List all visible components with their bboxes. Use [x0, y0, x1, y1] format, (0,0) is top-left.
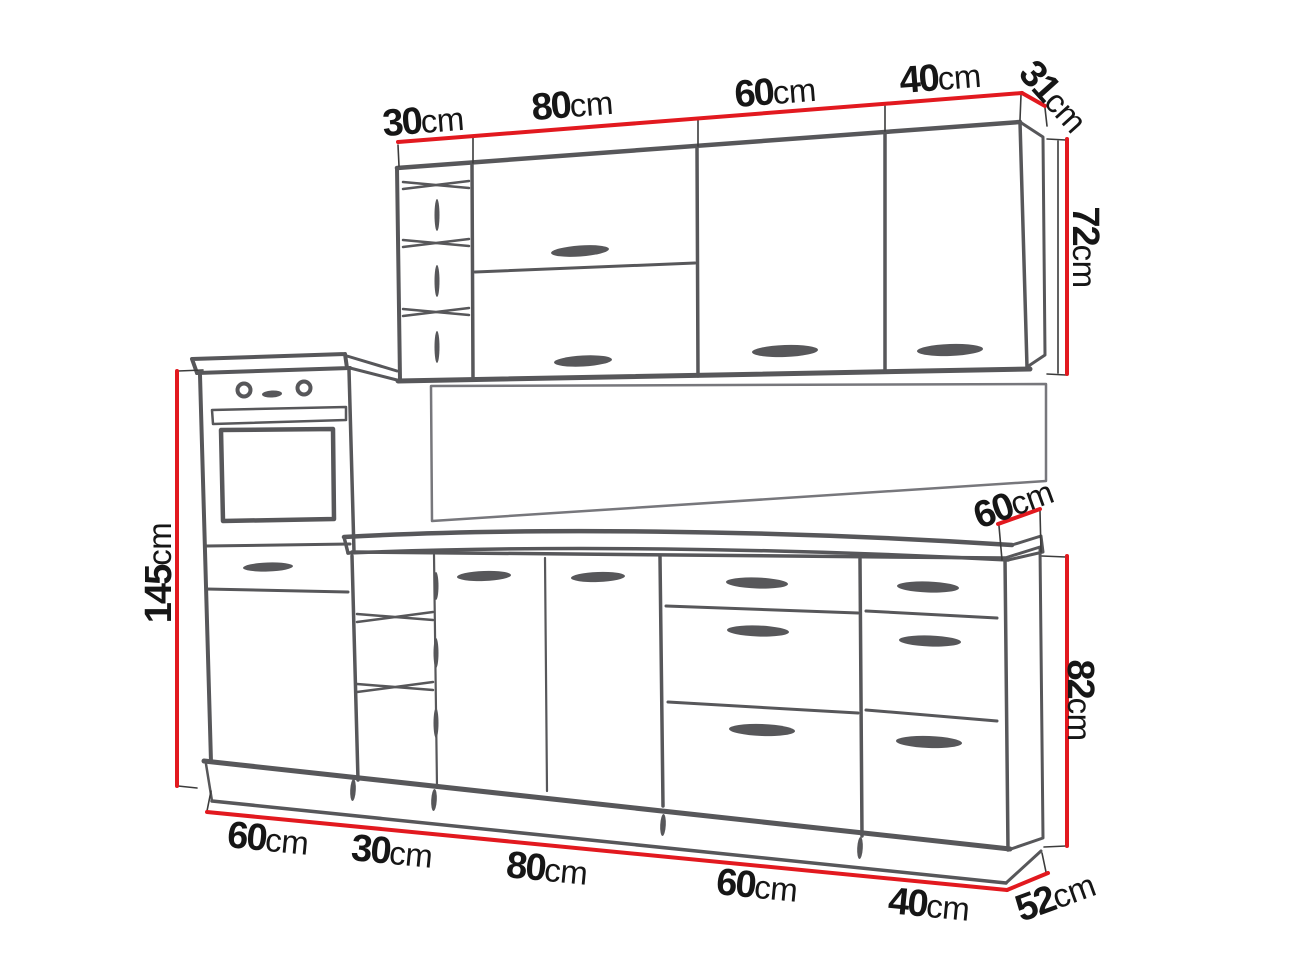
tall-oven-cabinet	[192, 354, 397, 762]
dim-label-upper-width-40: 40cm	[898, 54, 982, 102]
base-run-side-panel	[1005, 547, 1043, 850]
base-run-dividers	[660, 557, 862, 836]
dim-label-base-depth-52: 52cm	[1010, 863, 1101, 930]
kickplate-tick-1	[350, 779, 357, 801]
kitchen-dimension-diagram: 30cm 80cm 60cm 40cm 31cm 72cm 145cm 60cm…	[0, 0, 1306, 979]
base-60-drawer-lines	[666, 606, 858, 713]
base-cabinet-run	[204, 547, 1043, 883]
dim-label-base-height-82: 82cm	[1059, 659, 1101, 740]
base-shelf-unit-left-edge	[352, 556, 358, 780]
dim-line-upper-widths	[398, 93, 1022, 142]
base-40-drawer-handle-3	[896, 735, 962, 749]
upper-80-top-door-handle	[551, 243, 610, 258]
oven-indicator-icon	[262, 390, 282, 398]
base-shelf-edges	[357, 612, 433, 692]
upper-run-top-edge	[397, 122, 1020, 168]
oven-door-window	[221, 429, 334, 521]
kickplate-tick-2	[431, 789, 438, 811]
upper-run-bottom-edge	[398, 369, 1030, 381]
dim-label-upper-depth-31: 31cm	[1010, 52, 1096, 141]
oven-front	[206, 382, 350, 593]
dim-label-tall-height-145: 145cm	[138, 523, 180, 623]
upper-60-door-handle	[752, 344, 818, 358]
upper-cabinet-run	[397, 122, 1045, 381]
base-60-drawer-handle-1	[726, 576, 788, 589]
upper-80-door-split-line	[475, 263, 695, 272]
tall-cabinet-top-slab	[192, 354, 350, 373]
upper-shelf-support-1	[435, 199, 440, 231]
tall-cabinet-right-edge	[349, 370, 354, 552]
upper-open-shelf-unit	[403, 181, 469, 363]
extension-lines	[178, 95, 1066, 872]
oven-knob-right-icon	[298, 382, 311, 395]
dim-label-base-width-80: 80cm	[504, 844, 589, 894]
tall-cabinet-left-edge	[200, 375, 211, 762]
upper-run-front-right-corner	[1020, 122, 1027, 367]
backsplash-outline	[431, 384, 1046, 521]
dim-label-worktop-depth-60: 60cm	[968, 470, 1059, 537]
upper-40-door-handle	[917, 343, 983, 357]
kitchen-set-drawing: 30cm 80cm 60cm 40cm 31cm 72cm 145cm 60cm…	[0, 0, 1306, 979]
base-shelf-support-3	[434, 708, 439, 738]
base-shelf-support-2	[434, 638, 439, 668]
upper-shelf-support-3	[435, 331, 440, 363]
base-shelf-support-1	[434, 572, 439, 600]
tall-cabinet-top-connector	[347, 356, 397, 380]
base-run-thin-dividers	[434, 555, 547, 791]
extension-line-set	[178, 95, 1066, 872]
worktop-left-cap	[344, 537, 348, 553]
kickplate-ground-line	[212, 801, 1006, 883]
upper-shelf-support-2	[435, 265, 440, 297]
oven-handle-bar	[212, 407, 346, 424]
upper-80-bottom-door-handle	[554, 354, 612, 368]
dim-label-upper-width-80: 80cm	[530, 81, 614, 129]
worktop-top-edge	[344, 531, 1012, 545]
base-80-left-door-handle	[457, 570, 511, 582]
dim-label-base-width-40: 40cm	[886, 880, 971, 930]
base-60-drawer-handle-3	[729, 723, 795, 737]
dimension-labels: 30cm 80cm 60cm 40cm 31cm 72cm 145cm 60cm…	[138, 52, 1106, 930]
base-80-right-door-handle	[571, 571, 625, 583]
base-run-bottom-edge	[204, 761, 1010, 849]
kickplate-tick-4	[857, 837, 864, 859]
upper-run-left-edge	[397, 168, 400, 380]
backsplash-panel	[431, 384, 1046, 521]
base-40-drawer-lines	[866, 611, 997, 721]
oven-drawer-bottom-line	[206, 589, 348, 592]
oven-drawer-handle	[243, 562, 293, 573]
base-40-drawer-handle-1	[897, 580, 959, 593]
base-run-front-right-corner	[1005, 558, 1008, 850]
base-40-drawer-handle-2	[899, 634, 961, 647]
dim-line-base-widths	[207, 812, 1007, 890]
oven-knob-left-icon	[238, 384, 251, 397]
base-open-shelf-unit	[357, 572, 439, 738]
kickplate-tick-3	[660, 814, 667, 836]
oven-bottom-line	[206, 544, 350, 546]
base-60-drawer-handle-2	[727, 624, 789, 637]
kickplate-left-edge	[206, 764, 212, 801]
upper-run-dividers	[472, 133, 885, 379]
dim-label-upper-height-72: 72cm	[1064, 206, 1106, 287]
